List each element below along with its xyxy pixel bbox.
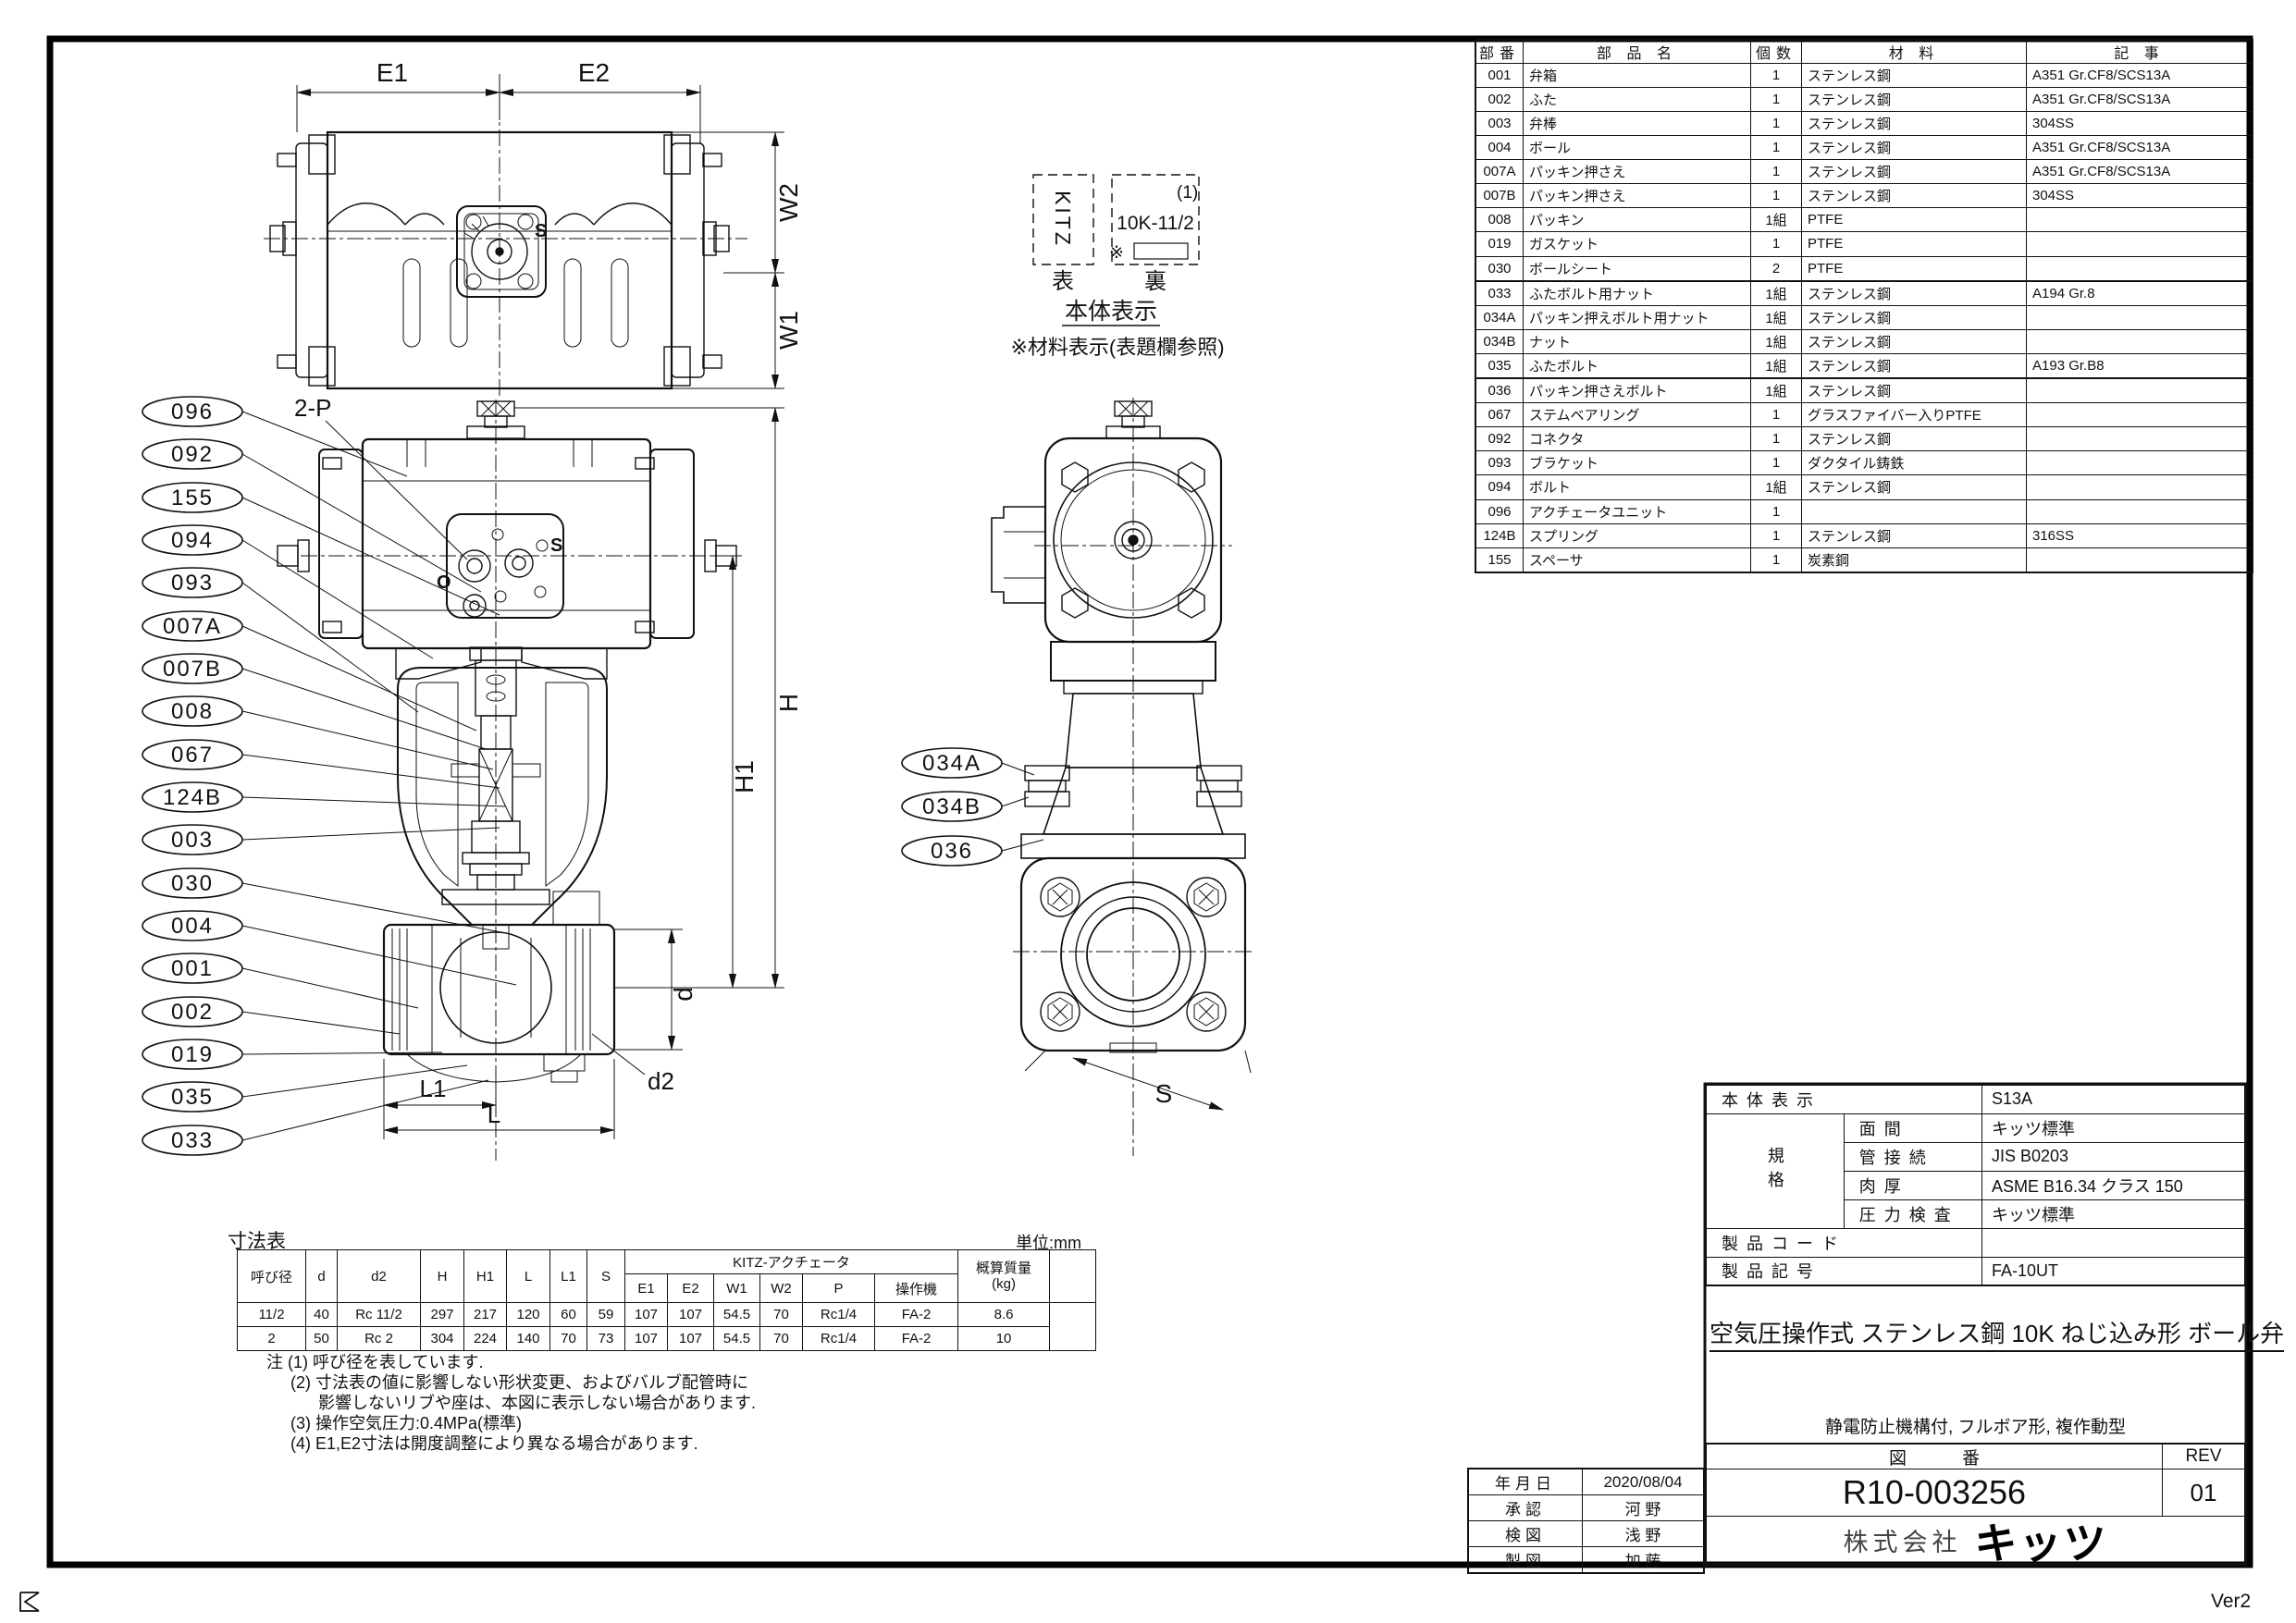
drawing-number-label: 図番 <box>1707 1445 2163 1469</box>
parts-cell <box>2027 499 2253 523</box>
balloon-label: 007B <box>163 657 222 682</box>
dim-label-W2: W2 <box>774 183 803 222</box>
parts-table-row: 007Aパッキン押さえ1ステンレス鋼A351 Gr.CF8/SCS13A <box>1475 160 2253 184</box>
dim-label-H1: H1 <box>730 760 759 793</box>
dim-table-row: 250Rc 2304224140707310710754.570Rc1/4FA-… <box>238 1327 1096 1351</box>
parts-cell: ステンレス鋼 <box>1802 353 2027 378</box>
parts-cell: 1 <box>1751 64 1802 88</box>
nameplate-note1: (1) <box>1177 183 1198 203</box>
parts-cell: ステンレス鋼 <box>1802 523 2027 547</box>
note-line: 影響しないリブや座は、本図に表示しない場合があります. <box>318 1393 756 1413</box>
balloon-label: 034B <box>922 794 981 819</box>
parts-table-row: 094ボルト1組ステンレス鋼 <box>1475 475 2253 499</box>
parts-cell: ステンレス鋼 <box>1802 64 2027 88</box>
nameplate-rating: 10K-11/2 <box>1117 213 1194 234</box>
dim-cell: 54.5 <box>714 1327 760 1351</box>
parts-cell <box>2027 547 2253 572</box>
dim-cell: 2 <box>238 1327 306 1351</box>
parts-table-row: 003弁棒1ステンレス鋼304SS <box>1475 112 2253 136</box>
parts-cell <box>2027 427 2253 451</box>
dim-table-row: 11/240Rc 11/2297217120605910710754.570Rc… <box>238 1303 1096 1327</box>
note-line: (4) E1,E2寸法は開度調整により異なる場合があります. <box>290 1433 756 1454</box>
parts-cell: 炭素鋼 <box>1802 547 2027 572</box>
parts-table-row: 034Bナット1組ステンレス鋼 <box>1475 329 2253 353</box>
parts-table-header: 部番 部 品 名 個数 材 料 記 事 <box>1475 40 2253 64</box>
parts-table-row: 124Bスプリング1ステンレス鋼316SS <box>1475 523 2253 547</box>
parts-cell: ステムベアリング <box>1524 403 1751 427</box>
parts-cell: パッキン押さえボルト <box>1524 378 1751 403</box>
parts-cell: スペーサ <box>1524 547 1751 572</box>
parts-cell: 1組 <box>1751 475 1802 499</box>
parts-cell: ステンレス鋼 <box>1802 88 2027 112</box>
balloon-label: 124B <box>163 785 222 810</box>
parts-cell: ボルト <box>1524 475 1751 499</box>
balloon-leader <box>242 711 493 769</box>
dim-col-S: S <box>587 1250 625 1303</box>
dim-label-L1: L1 <box>420 1075 447 1102</box>
balloon-label: 033 <box>171 1128 214 1153</box>
col-header-material: 材 料 <box>1802 40 2027 64</box>
dim-cell: 60 <box>550 1303 587 1327</box>
parts-cell: 035 <box>1475 353 1524 378</box>
balloon-label: 093 <box>171 571 214 596</box>
parts-cell: 034A <box>1475 305 1524 329</box>
spec-label-wall-thickness: 肉厚 <box>1844 1171 1981 1199</box>
parts-cell: 1組 <box>1751 378 1802 403</box>
note-line: 注 (1) 呼び径を表しています. <box>266 1352 756 1372</box>
dim-cell: 107 <box>668 1327 714 1351</box>
approval-row-checked: 検図 浅 野 <box>1468 1521 1704 1547</box>
parts-cell: 316SS <box>2027 523 2253 547</box>
parts-cell: ガスケット <box>1524 232 1751 256</box>
dim-cell: 73 <box>587 1327 625 1351</box>
parts-cell: 092 <box>1475 427 1524 451</box>
nameplate-heading: 本体表示 <box>1065 299 1157 325</box>
parts-cell: 034B <box>1475 329 1524 353</box>
note-line: (2) 寸法表の値に影響しない形状変更、およびバルブ配管時に <box>290 1372 756 1393</box>
part-balloon-036: 036 <box>902 836 1043 866</box>
dim-col-H1: H1 <box>464 1250 507 1303</box>
parts-cell: A194 Gr.8 <box>2027 281 2253 306</box>
dim-label-d: d <box>669 987 697 1002</box>
dim-actuator-span: KITZ-アクチェータ <box>625 1250 958 1274</box>
spec-table: 本体表示 S13A 規格 面間 キッツ標準 管接続 JIS B0203 肉厚 A… <box>1705 1084 2246 1286</box>
balloon-label: 035 <box>171 1085 214 1110</box>
parts-cell: ステンレス鋼 <box>1802 112 2027 136</box>
parts-cell <box>2027 208 2253 232</box>
parts-cell: 007A <box>1475 160 1524 184</box>
approval-value-approved: 河 野 <box>1583 1495 1705 1521</box>
parts-cell: ふたボルト用ナット <box>1524 281 1751 306</box>
parts-cell: 1 <box>1751 499 1802 523</box>
dim-cell: 8.6 <box>958 1303 1050 1327</box>
parts-cell: 036 <box>1475 378 1524 403</box>
dim-cell: 224 <box>464 1327 507 1351</box>
dim-col-L1: L1 <box>550 1250 587 1303</box>
projection-symbol-icon <box>20 1592 39 1611</box>
parts-table-row: 002ふた1ステンレス鋼A351 Gr.CF8/SCS13A <box>1475 88 2253 112</box>
parts-cell: 067 <box>1475 403 1524 427</box>
parts-cell: 007B <box>1475 184 1524 208</box>
balloon-leader <box>242 755 500 788</box>
spec-label-body-marking: 本体表示 <box>1706 1085 1982 1113</box>
parts-cell: ふたボルト <box>1524 353 1751 378</box>
dim-col-d: d <box>306 1250 338 1303</box>
parts-cell <box>2027 305 2253 329</box>
dim-cell: Rc1/4 <box>803 1327 875 1351</box>
part-balloon-002: 002 <box>142 997 400 1034</box>
parts-cell <box>2027 232 2253 256</box>
drawing-sheet: S E1 E2 W2 W1 <box>0 0 2296 1623</box>
nameplate-material-note: ※材料表示(表題欄参照) <box>1010 336 1224 359</box>
dim-label-H: H <box>774 694 803 712</box>
dim-cell: 70 <box>760 1327 803 1351</box>
parts-cell: ボール <box>1524 136 1751 160</box>
plate-s-mark: S <box>550 535 562 556</box>
parts-cell: アクチェータユニット <box>1524 499 1751 523</box>
approval-value-checked: 浅 野 <box>1583 1521 1705 1547</box>
parts-cell: 1 <box>1751 184 1802 208</box>
balloon-leader <box>242 1012 400 1034</box>
part-balloon-034A: 034A <box>902 748 1034 778</box>
dim-label-S: S <box>1155 1079 1173 1108</box>
parts-cell: 1 <box>1751 403 1802 427</box>
balloon-leader <box>1002 763 1034 775</box>
parts-table-row: 035ふたボルト1組ステンレス鋼A193 Gr.B8 <box>1475 353 2253 378</box>
balloon-label: 036 <box>931 839 973 864</box>
parts-table-row: 034Aパッキン押えボルト用ナット1組ステンレス鋼 <box>1475 305 2253 329</box>
drawing-notes: 注 (1) 呼び径を表しています.(2) 寸法表の値に影響しない形状変更、および… <box>266 1352 756 1454</box>
parts-table-row: 030ボールシート2PTFE <box>1475 256 2253 281</box>
spec-label-pipe-connection: 管接続 <box>1844 1142 1981 1171</box>
balloon-leader <box>242 883 511 934</box>
dim-cell: 11/2 <box>238 1303 306 1327</box>
approval-table: 年月日 2020/08/04 承認 河 野 検図 浅 野 製図 加 藤 <box>1467 1468 1705 1574</box>
parts-cell: ブラケット <box>1524 451 1751 475</box>
parts-cell: ステンレス鋼 <box>1802 475 2027 499</box>
parts-cell: ステンレス鋼 <box>1802 281 2027 306</box>
spec-row: 本体表示 S13A <box>1706 1085 2245 1113</box>
parts-table-row: 033ふたボルト用ナット1組ステンレス鋼A194 Gr.8 <box>1475 281 2253 306</box>
approval-label-checked: 検図 <box>1468 1521 1583 1547</box>
approval-value-drawn: 加 藤 <box>1583 1547 1705 1574</box>
approval-row-drawn: 製図 加 藤 <box>1468 1547 1704 1574</box>
part-balloon-124B: 124B <box>142 782 505 812</box>
dim-cell: 297 <box>421 1303 464 1327</box>
nameplate-kitz-text: KITZ <box>1051 191 1075 248</box>
parts-table-row: 019ガスケット1PTFE <box>1475 232 2253 256</box>
dim-cell: 70 <box>760 1303 803 1327</box>
parts-cell: ステンレス鋼 <box>1802 160 2027 184</box>
approval-label-date: 年月日 <box>1468 1469 1583 1495</box>
rev-label: REV <box>2163 1445 2244 1469</box>
parts-cell: パッキン <box>1524 208 1751 232</box>
balloon-leader <box>242 828 500 840</box>
dim-cell: 40 <box>306 1303 338 1327</box>
parts-table-row: 093ブラケット1ダクタイル鋳鉄 <box>1475 451 2253 475</box>
dim-header-span-row: 呼び径 d d2 H H1 L L1 S KITZ-アクチェータ 概算質量(kg… <box>238 1250 1096 1274</box>
front-view-dims <box>326 408 784 1139</box>
parts-cell: ダクタイル鋳鉄 <box>1802 451 2027 475</box>
dim-col-H: H <box>421 1250 464 1303</box>
nameplate-front-caption: 表 <box>1052 269 1074 294</box>
parts-cell: 1 <box>1751 523 1802 547</box>
parts-cell: 1 <box>1751 451 1802 475</box>
part-balloon-003: 003 <box>142 825 500 855</box>
dim-cell: 304 <box>421 1327 464 1351</box>
drawing-subtitle: 静電防止機構付, フルボア形, 複作動型 <box>1705 1413 2246 1438</box>
parts-cell: 304SS <box>2027 112 2253 136</box>
parts-table-row: 008パッキン1組PTFE <box>1475 208 2253 232</box>
parts-cell: A193 Gr.B8 <box>2027 353 2253 378</box>
spec-value-face-to-face: キッツ標準 <box>1982 1113 2246 1142</box>
col-header-part-name: 部 品 名 <box>1524 40 1751 64</box>
dim-col-E2: E2 <box>668 1274 714 1303</box>
dim-cell: 107 <box>668 1303 714 1327</box>
dim-label-E1: E1 <box>376 58 408 87</box>
company-name: 株式会社 <box>1844 1522 1962 1558</box>
spec-value-pipe-connection: JIS B0203 <box>1982 1142 2246 1171</box>
parts-cell: PTFE <box>1802 232 2027 256</box>
dim-cell: 10 <box>958 1327 1050 1351</box>
parts-cell <box>2027 451 2253 475</box>
balloon-label: 019 <box>171 1042 214 1067</box>
balloon-label: 096 <box>171 400 214 424</box>
dim-cell: 50 <box>306 1327 338 1351</box>
dim-col-P: P <box>803 1274 875 1303</box>
parts-cell: 094 <box>1475 475 1524 499</box>
parts-cell: グラスファイバー入りPTFE <box>1802 403 2027 427</box>
dim-cell: FA-2 <box>875 1327 958 1351</box>
parts-cell: ふた <box>1524 88 1751 112</box>
balloon-label: 003 <box>171 828 214 853</box>
parts-cell: ステンレス鋼 <box>1802 329 2027 353</box>
parts-cell: パッキン押えボルト用ナット <box>1524 305 1751 329</box>
parts-cell: ステンレス鋼 <box>1802 427 2027 451</box>
balloon-label: 067 <box>171 743 214 768</box>
balloon-label: 034A <box>922 751 981 776</box>
dimension-table: 呼び径 d d2 H H1 L L1 S KITZ-アクチェータ 概算質量(kg… <box>237 1249 1096 1351</box>
parts-table: 部番 部 品 名 個数 材 料 記 事 001弁箱1ステンレス鋼A351 Gr.… <box>1475 39 2253 573</box>
parts-cell: ナット <box>1524 329 1751 353</box>
spec-value-wall-thickness: ASME B16.34 クラス 150 <box>1982 1171 2246 1199</box>
dim-label-2P: 2-P <box>294 394 331 422</box>
side-view-dims <box>1025 1051 1251 1110</box>
parts-cell: 003 <box>1475 112 1524 136</box>
parts-cell: 1組 <box>1751 208 1802 232</box>
spec-label-product-code: 製品コード <box>1706 1228 1982 1257</box>
parts-cell: 2 <box>1751 256 1802 281</box>
balloon-label: 004 <box>171 914 214 939</box>
balloon-label: 007A <box>163 614 222 639</box>
parts-cell <box>1802 499 2027 523</box>
parts-table-row: 096アクチェータユニット1 <box>1475 499 2253 523</box>
drawing-number: R10-003256 <box>1707 1469 2163 1516</box>
parts-table-row: 067ステムベアリング1グラスファイバー入りPTFE <box>1475 403 2253 427</box>
approval-row-date: 年月日 2020/08/04 <box>1468 1469 1704 1495</box>
balloon-label: 008 <box>171 699 214 724</box>
balloon-label: 092 <box>171 442 214 467</box>
dim-label-E2: E2 <box>578 58 610 87</box>
parts-cell: ステンレス鋼 <box>1802 136 2027 160</box>
balloon-leader <box>242 926 516 985</box>
spec-value-product-symbol: FA-10UT <box>1982 1257 2246 1285</box>
parts-table-row: 036パッキン押さえボルト1組ステンレス鋼 <box>1475 378 2253 403</box>
drawing-title: 空気圧操作式 ステンレス鋼 10K ねじ込み形 ボール弁 <box>1710 1315 2244 1349</box>
dim-cell: 107 <box>625 1303 668 1327</box>
approval-label-drawn: 製図 <box>1468 1547 1583 1574</box>
nameplate-back-caption: 裏 <box>1144 269 1167 294</box>
balloon-label: 155 <box>171 486 214 510</box>
dim-label-d2: d2 <box>648 1067 674 1095</box>
rev-value: 01 <box>2163 1469 2244 1516</box>
parts-cell: 1 <box>1751 427 1802 451</box>
spec-group-standard: 規格 <box>1706 1113 1844 1228</box>
parts-cell: 1組 <box>1751 305 1802 329</box>
part-balloon-034B: 034B <box>902 792 1029 821</box>
drawing-number-block: 図番 REV R10-003256 01 株式会社 キッツ <box>1705 1443 2246 1565</box>
parts-cell: スプリング <box>1524 523 1751 547</box>
col-header-remarks: 記 事 <box>2027 40 2253 64</box>
parts-cell: A351 Gr.CF8/SCS13A <box>2027 88 2253 112</box>
balloon-leader <box>1002 840 1043 851</box>
parts-cell: 001 <box>1475 64 1524 88</box>
parts-cell: 1 <box>1751 112 1802 136</box>
dim-col-E1: E1 <box>625 1274 668 1303</box>
parts-cell: 033 <box>1475 281 1524 306</box>
parts-cell: ステンレス鋼 <box>1802 378 2027 403</box>
parts-cell: 1組 <box>1751 353 1802 378</box>
dim-col-W2: W2 <box>760 1274 803 1303</box>
parts-cell: 124B <box>1475 523 1524 547</box>
dim-cell: 70 <box>550 1327 587 1351</box>
top-view <box>264 74 747 400</box>
spec-row: 製品コード <box>1706 1228 2245 1257</box>
dim-label-W1: W1 <box>774 311 803 350</box>
spec-value-product-code <box>1982 1228 2246 1257</box>
dim-cell: 59 <box>587 1303 625 1327</box>
parts-cell: 1 <box>1751 88 1802 112</box>
side-view <box>992 398 1253 1156</box>
parts-cell: 1 <box>1751 160 1802 184</box>
parts-cell: A351 Gr.CF8/SCS13A <box>2027 136 2253 160</box>
note-line: (3) 操作空気圧力:0.4MPa(標準) <box>290 1413 756 1433</box>
dim-cell: 107 <box>625 1327 668 1351</box>
approval-row-approved: 承認 河 野 <box>1468 1495 1704 1521</box>
parts-cell: 093 <box>1475 451 1524 475</box>
dial-s-mark: S <box>535 221 547 241</box>
parts-table-row: 007Bパッキン押さえ1ステンレス鋼304SS <box>1475 184 2253 208</box>
parts-cell: 155 <box>1475 547 1524 572</box>
parts-cell: A351 Gr.CF8/SCS13A <box>2027 160 2253 184</box>
parts-cell: ボールシート <box>1524 256 1751 281</box>
balloon-leader <box>242 1080 488 1140</box>
dim-col-blank <box>1050 1250 1096 1303</box>
approval-value-date: 2020/08/04 <box>1583 1469 1705 1495</box>
parts-cell: 1 <box>1751 232 1802 256</box>
dim-cell: Rc1/4 <box>803 1303 875 1327</box>
parts-cell: PTFE <box>1802 256 2027 281</box>
parts-cell: パッキン押さえ <box>1524 184 1751 208</box>
kitz-logo: キッツ <box>1975 1510 2108 1571</box>
balloon-label: 002 <box>171 1000 214 1025</box>
spec-label-product-symbol: 製品記号 <box>1706 1257 1982 1285</box>
parts-cell: 304SS <box>2027 184 2253 208</box>
dim-cell: Rc 11/2 <box>338 1303 421 1327</box>
balloon-label: 030 <box>171 871 214 896</box>
parts-table-row: 001弁箱1ステンレス鋼A351 Gr.CF8/SCS13A <box>1475 64 2253 88</box>
parts-cell <box>2027 329 2253 353</box>
parts-cell: 弁箱 <box>1524 64 1751 88</box>
spec-row: 製品記号 FA-10UT <box>1706 1257 2245 1285</box>
balloon-label: 001 <box>171 956 214 981</box>
parts-table-row: 155スペーサ1炭素鋼 <box>1475 547 2253 572</box>
dim-cell: 140 <box>507 1327 550 1351</box>
parts-cell: PTFE <box>1802 208 2027 232</box>
parts-cell: A351 Gr.CF8/SCS13A <box>2027 64 2253 88</box>
nameplate-star: ※ <box>1109 243 1124 263</box>
dim-col-L: L <box>507 1250 550 1303</box>
parts-cell: パッキン押さえ <box>1524 160 1751 184</box>
dim-label-L: L <box>488 1100 500 1128</box>
parts-cell: 030 <box>1475 256 1524 281</box>
parts-cell <box>2027 475 2253 499</box>
approval-label-approved: 承認 <box>1468 1495 1583 1521</box>
spec-label-pressure-test: 圧力検査 <box>1844 1199 1981 1228</box>
balloon-leader <box>242 797 505 806</box>
parts-cell: ステンレス鋼 <box>1802 184 2027 208</box>
parts-cell: 019 <box>1475 232 1524 256</box>
parts-cell: 1 <box>1751 136 1802 160</box>
col-header-qty: 個数 <box>1751 40 1802 64</box>
parts-table-row: 004ボール1ステンレス鋼A351 Gr.CF8/SCS13A <box>1475 136 2253 160</box>
dim-col-W1: W1 <box>714 1274 760 1303</box>
balloon-leader <box>242 540 433 658</box>
part-balloon-067: 067 <box>142 740 500 788</box>
balloon-layer: 096092155094093007A007B008067124B0030300… <box>142 397 1043 1155</box>
parts-cell: 002 <box>1475 88 1524 112</box>
parts-cell <box>2027 256 2253 281</box>
balloon-label: 094 <box>171 528 214 553</box>
parts-cell: 096 <box>1475 499 1524 523</box>
dim-cell: Rc 2 <box>338 1327 421 1351</box>
dim-col-actuator: 操作機 <box>875 1274 958 1303</box>
dim-col-mass: 概算質量(kg) <box>958 1250 1050 1303</box>
parts-cell: 004 <box>1475 136 1524 160</box>
parts-cell: 弁棒 <box>1524 112 1751 136</box>
parts-cell: 1組 <box>1751 329 1802 353</box>
parts-cell: ステンレス鋼 <box>1802 305 2027 329</box>
parts-table-row: 092コネクタ1ステンレス鋼 <box>1475 427 2253 451</box>
spec-label-face-to-face: 面間 <box>1844 1113 1981 1142</box>
parts-cell <box>2027 378 2253 403</box>
dim-cell: FA-2 <box>875 1303 958 1327</box>
parts-cell: 008 <box>1475 208 1524 232</box>
col-header-part-no: 部番 <box>1475 40 1524 64</box>
parts-cell <box>2027 403 2253 427</box>
spec-value-pressure-test: キッツ標準 <box>1982 1199 2246 1228</box>
dim-cell: 217 <box>464 1303 507 1327</box>
spec-value-body-marking: S13A <box>1982 1085 2246 1113</box>
dim-col-d2: d2 <box>338 1250 421 1303</box>
parts-cell: 1 <box>1751 547 1802 572</box>
dim-col-size: 呼び径 <box>238 1250 306 1303</box>
parts-cell: 1組 <box>1751 281 1802 306</box>
version-label: Ver2 <box>2211 1591 2251 1613</box>
dim-cell: 120 <box>507 1303 550 1327</box>
parts-cell: コネクタ <box>1524 427 1751 451</box>
dim-cell: 54.5 <box>714 1303 760 1327</box>
